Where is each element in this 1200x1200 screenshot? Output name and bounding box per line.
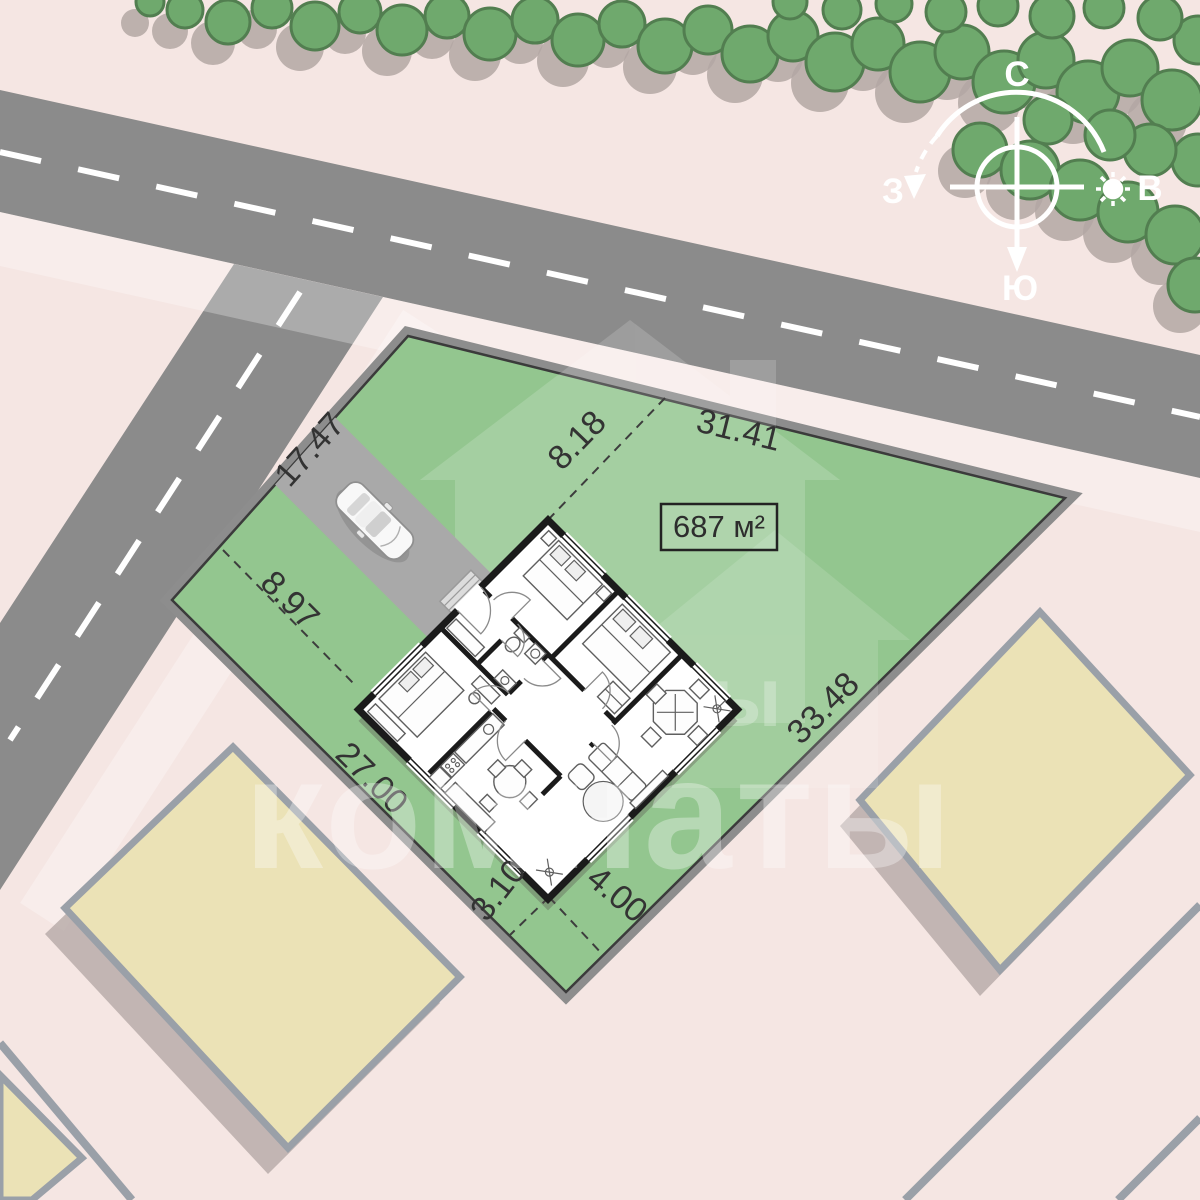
- compass-north-label: С: [1004, 55, 1029, 94]
- compass-south-label: Ю: [1002, 269, 1038, 308]
- site-plan-drawing: С Ю В З: [0, 0, 1200, 1200]
- site-plan-canvas: С Ю В З: [0, 0, 1200, 1200]
- watermark-big-text: комнаты: [244, 726, 956, 902]
- area-value: 687 м²: [673, 509, 765, 544]
- compass-west-label: З: [882, 172, 904, 211]
- compass-east-label: В: [1137, 169, 1162, 208]
- area-badge: 687 м²: [661, 504, 777, 550]
